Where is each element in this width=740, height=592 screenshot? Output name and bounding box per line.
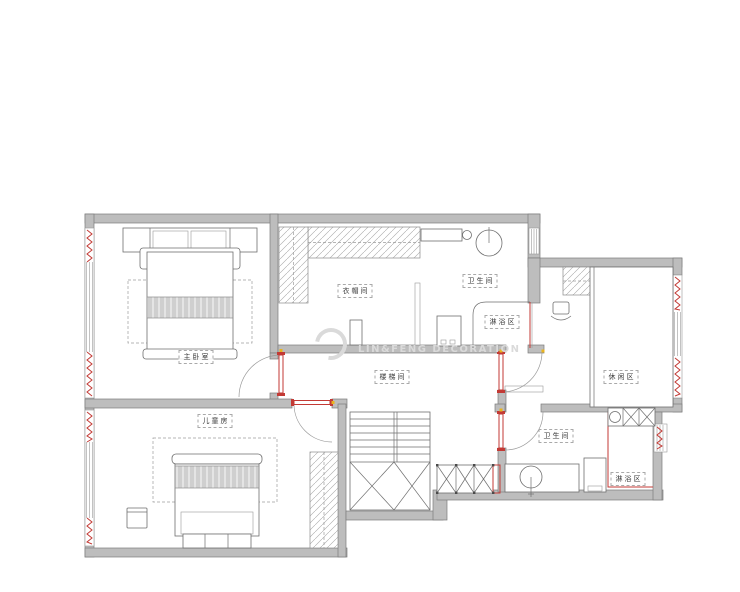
door-leaf [294,401,330,405]
stair-railing [436,464,500,494]
room-label-stair-hall: 楼梯间 [375,370,410,384]
tall-cabinet [584,458,606,492]
stool-icon [127,508,147,528]
foot-cabinet [183,534,251,548]
chair-icon [553,302,569,314]
door-leaf [499,354,503,390]
room-label-cloakroom: 衣帽间 [338,284,373,298]
closet-cabinet [350,320,362,345]
room-label-kids-room: 儿童房 [198,414,233,428]
room-label-bathroom-lower: 卫生间 [539,429,574,443]
door-swing-arc [505,412,543,450]
headboard [172,454,262,464]
room-label-shower-upper: 淋浴区 [485,315,520,329]
vanity-counter [421,229,462,241]
room-label-master-bedroom: 主卧室 [179,350,214,364]
tatami-platform [590,267,673,407]
door-swing-arc [239,355,281,397]
bed-blanket-band [175,466,259,488]
door-leaf [499,414,503,448]
kids-room-furniture [127,438,338,548]
master-bedroom-furniture [123,228,257,359]
room-label-leisure-room: 休闲区 [604,370,639,384]
room-label-shower-lower: 淋浴区 [611,472,646,486]
door-swing-arc [294,404,332,442]
watermark-text: LIN&FENG DECORATION [358,344,520,355]
sink-icon [463,231,472,240]
floor-plan-canvas: 主卧室 衣帽间 卫生间 淋浴区 楼梯间 休闲区 儿童房 卫生间 淋浴区 LIN&… [0,0,740,592]
staircase [350,412,430,510]
partition-wall [415,283,420,345]
bed-blanket-band [147,297,233,318]
toilet-icon [437,316,461,346]
room-label-bathroom-upper: 卫生间 [463,274,498,288]
door-leaf [279,355,283,393]
